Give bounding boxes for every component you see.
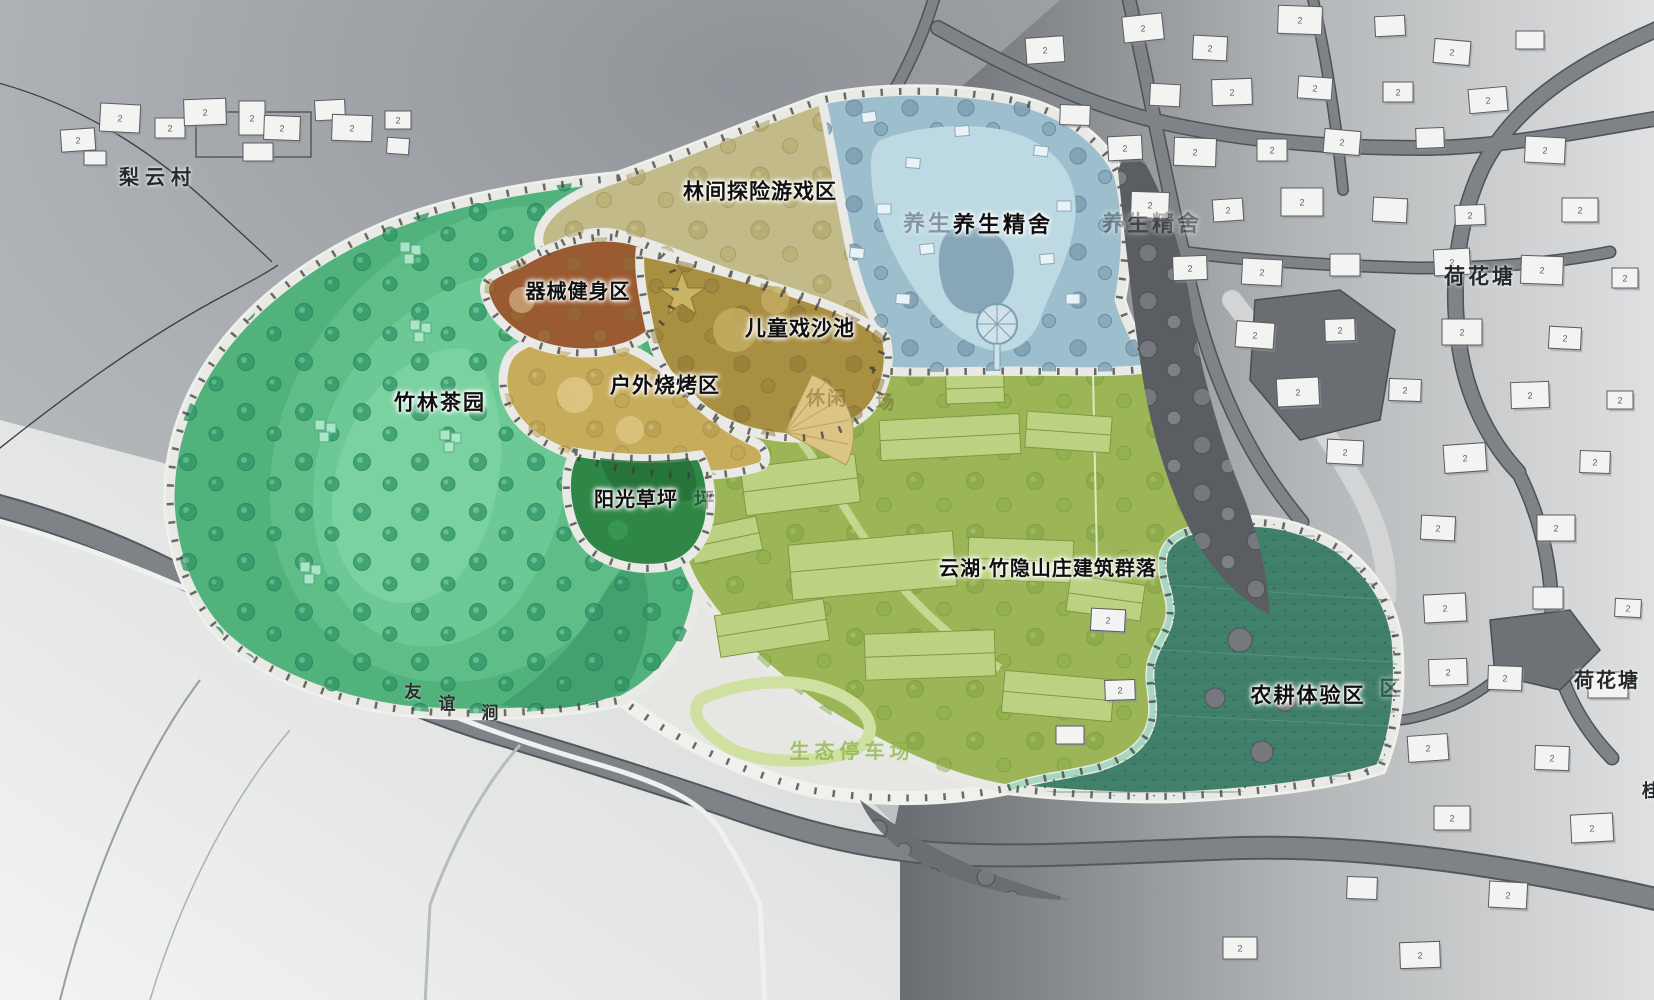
- village-building: 2: [1173, 137, 1218, 169]
- village-building: 2: [1107, 135, 1144, 163]
- label-villa-complex: 云湖·竹隐山庄建筑群落: [939, 559, 1157, 579]
- svg-text:2: 2: [1449, 814, 1454, 824]
- svg-text:2: 2: [1312, 83, 1318, 93]
- svg-text:2: 2: [202, 107, 207, 117]
- svg-text:2: 2: [1117, 685, 1122, 695]
- village-building: 2: [155, 118, 187, 141]
- village-building: 2: [1455, 204, 1488, 228]
- label-ghost-farming: 区: [1380, 679, 1401, 700]
- label-wm-parking: 生态停车场: [790, 742, 915, 762]
- village-building: 2: [1297, 76, 1335, 103]
- svg-text:2: 2: [1502, 673, 1507, 683]
- village-building: [1416, 127, 1447, 151]
- site-plan-map: 2222222222222222222222222222222222222222…: [0, 0, 1654, 1000]
- svg-text:2: 2: [1592, 457, 1597, 467]
- village-building: 2: [1442, 319, 1484, 348]
- village-building: 2: [1570, 813, 1616, 846]
- svg-text:2: 2: [349, 123, 354, 133]
- village-building: 2: [1325, 318, 1358, 344]
- village-building: 2: [1235, 321, 1277, 352]
- svg-text:2: 2: [1425, 743, 1431, 753]
- village-building: 2: [184, 98, 229, 128]
- village-building: 2: [1511, 381, 1552, 411]
- svg-text:2: 2: [1445, 667, 1450, 677]
- village-building: 2: [99, 103, 143, 136]
- svg-text:2: 2: [1269, 146, 1274, 156]
- svg-text:2: 2: [249, 114, 254, 124]
- svg-text:2: 2: [1449, 47, 1455, 57]
- label-ghost-wellness-1: 养生: [903, 213, 953, 235]
- village-building: [1149, 83, 1182, 109]
- village-building: 2: [1434, 806, 1472, 833]
- svg-text:2: 2: [1435, 523, 1441, 533]
- svg-text:2: 2: [1339, 137, 1345, 147]
- label-forest-adventure: 林间探险游戏区: [683, 182, 837, 203]
- village-building: [1372, 197, 1409, 225]
- village-building: [1330, 254, 1362, 279]
- label-sunshine-lawn: 阳光草坪: [594, 490, 678, 510]
- label-equipment-fitness: 器械健身区: [526, 282, 631, 302]
- village-building: 2: [1548, 326, 1583, 352]
- label-edge-partial: 桂: [1642, 782, 1654, 800]
- village-building: 2: [1212, 198, 1246, 225]
- village-building: 2: [1423, 593, 1469, 626]
- svg-text:2: 2: [167, 124, 172, 134]
- village-building: 2: [1443, 442, 1489, 475]
- village-building: 2: [1614, 598, 1643, 620]
- svg-text:2: 2: [1539, 265, 1544, 275]
- village-building: 2: [1257, 139, 1289, 164]
- label-lotus-pond-top: 荷花塘: [1444, 267, 1516, 288]
- village-building: 2: [385, 111, 413, 132]
- label-children-sand-pool: 儿童戏沙池: [745, 319, 855, 340]
- label-liyun-village: 梨云村: [119, 168, 197, 188]
- village-building: 2: [1488, 665, 1525, 693]
- label-outdoor-bbq: 户外烧烤区: [610, 376, 720, 397]
- village-building: 2: [1562, 198, 1600, 225]
- village-building: 2: [1281, 188, 1325, 219]
- village-building: 2: [1389, 378, 1424, 404]
- label-wm-leisure-2: 场: [875, 394, 894, 413]
- village-building: 2: [1420, 515, 1457, 543]
- village-building: 2: [1400, 941, 1443, 971]
- svg-text:2: 2: [1459, 328, 1464, 338]
- label-wellness-retreat: 养生精舍: [953, 214, 1053, 236]
- label-ghost-lawn: 坪: [694, 491, 714, 511]
- village-building: [1374, 15, 1407, 39]
- svg-text:2: 2: [1617, 396, 1622, 406]
- svg-text:2: 2: [1467, 210, 1472, 220]
- svg-text:2: 2: [1542, 145, 1548, 155]
- village-building: 2: [1524, 136, 1567, 167]
- village-building: 2: [1241, 258, 1284, 289]
- svg-text:2: 2: [1625, 603, 1631, 613]
- svg-text:2: 2: [1553, 524, 1558, 534]
- village-building: 2: [1276, 377, 1322, 410]
- svg-text:2: 2: [1105, 615, 1111, 625]
- svg-text:2: 2: [1297, 15, 1302, 25]
- svg-text:2: 2: [1295, 387, 1301, 397]
- svg-text:2: 2: [1252, 330, 1258, 340]
- svg-text:2: 2: [1549, 753, 1554, 763]
- village-building: 2: [1520, 255, 1565, 287]
- svg-text:2: 2: [1229, 87, 1234, 97]
- village-building: [243, 143, 275, 164]
- village-building: 2: [1433, 38, 1473, 68]
- svg-text:2: 2: [1237, 944, 1242, 954]
- village-building: 2: [1468, 86, 1510, 116]
- village-building: 2: [1326, 439, 1365, 467]
- svg-text:2: 2: [279, 123, 284, 133]
- site-plan-canvas: 2222222222222222222222222222222222222222…: [0, 0, 1654, 1000]
- svg-text:2: 2: [1395, 88, 1400, 98]
- svg-text:2: 2: [1207, 43, 1213, 53]
- village-building: [386, 137, 411, 157]
- village-building: 2: [1223, 937, 1259, 962]
- village-building: 2: [1407, 733, 1451, 764]
- svg-text:2: 2: [1562, 333, 1568, 343]
- svg-text:2: 2: [1485, 95, 1491, 105]
- village-building: 2: [331, 114, 374, 144]
- svg-text:2: 2: [1140, 23, 1146, 33]
- svg-text:2: 2: [1342, 447, 1348, 457]
- village-building: 2: [1383, 82, 1415, 105]
- svg-text:2: 2: [1192, 147, 1197, 157]
- village-building: 2: [1537, 515, 1577, 544]
- village-building: 2: [1025, 36, 1067, 67]
- village-building: [1516, 31, 1546, 52]
- svg-text:2: 2: [1589, 823, 1595, 833]
- village-building: [1533, 587, 1565, 612]
- label-ghost-wellness-2: 养生精舍: [1102, 213, 1202, 235]
- svg-text:2: 2: [1462, 453, 1468, 463]
- village-building: [1347, 876, 1380, 902]
- svg-text:2: 2: [75, 135, 81, 145]
- svg-text:2: 2: [1187, 263, 1192, 273]
- svg-text:2: 2: [1577, 206, 1582, 216]
- svg-text:2: 2: [117, 113, 123, 123]
- village-building: 2: [1277, 5, 1324, 37]
- svg-text:2: 2: [1527, 390, 1532, 400]
- svg-text:2: 2: [1622, 274, 1627, 284]
- svg-text:2: 2: [1299, 198, 1304, 208]
- svg-text:2: 2: [1402, 385, 1407, 395]
- svg-text:2: 2: [395, 116, 400, 126]
- svg-text:2: 2: [1042, 45, 1048, 55]
- svg-text:2: 2: [1259, 267, 1265, 277]
- label-lotus-pond-right: 荷花塘: [1574, 671, 1640, 691]
- svg-text:2: 2: [1225, 205, 1231, 215]
- label-farming-experience: 农耕体验区: [1251, 686, 1366, 707]
- village-building: [1060, 104, 1093, 128]
- svg-text:2: 2: [1122, 143, 1128, 153]
- village-building: 2: [1090, 608, 1127, 634]
- label-stream-char-2: 谊: [439, 696, 456, 713]
- village-building: 2: [264, 115, 303, 143]
- village-building: 2: [1488, 881, 1529, 912]
- svg-text:2: 2: [1505, 890, 1511, 900]
- svg-text:2: 2: [1147, 200, 1152, 210]
- svg-text:2: 2: [1417, 950, 1422, 960]
- label-stream-char-3: 涧: [482, 705, 499, 722]
- village-building: 2: [1122, 13, 1167, 46]
- village-building: 2: [1192, 35, 1229, 63]
- village-building: 2: [1535, 745, 1572, 773]
- village-building: 2: [1105, 679, 1138, 703]
- village-building: [1056, 726, 1086, 747]
- label-wm-leisure-1: 休闲: [806, 390, 848, 409]
- village-building: 2: [239, 101, 267, 138]
- village-building: 2: [1212, 78, 1255, 108]
- village-building: 2: [1607, 391, 1635, 412]
- label-bamboo-tea-garden: 竹林茶园: [394, 393, 486, 414]
- village-building: 2: [1580, 450, 1613, 476]
- label-stream-char-1: 友: [405, 684, 422, 701]
- village-building: 2: [1429, 658, 1470, 688]
- village-building: 2: [1323, 128, 1363, 158]
- svg-text:2: 2: [1442, 603, 1448, 613]
- village-building: 2: [1612, 268, 1640, 291]
- svg-text:2: 2: [1337, 325, 1342, 335]
- village-building: 2: [1173, 255, 1210, 283]
- village-building: [84, 151, 108, 168]
